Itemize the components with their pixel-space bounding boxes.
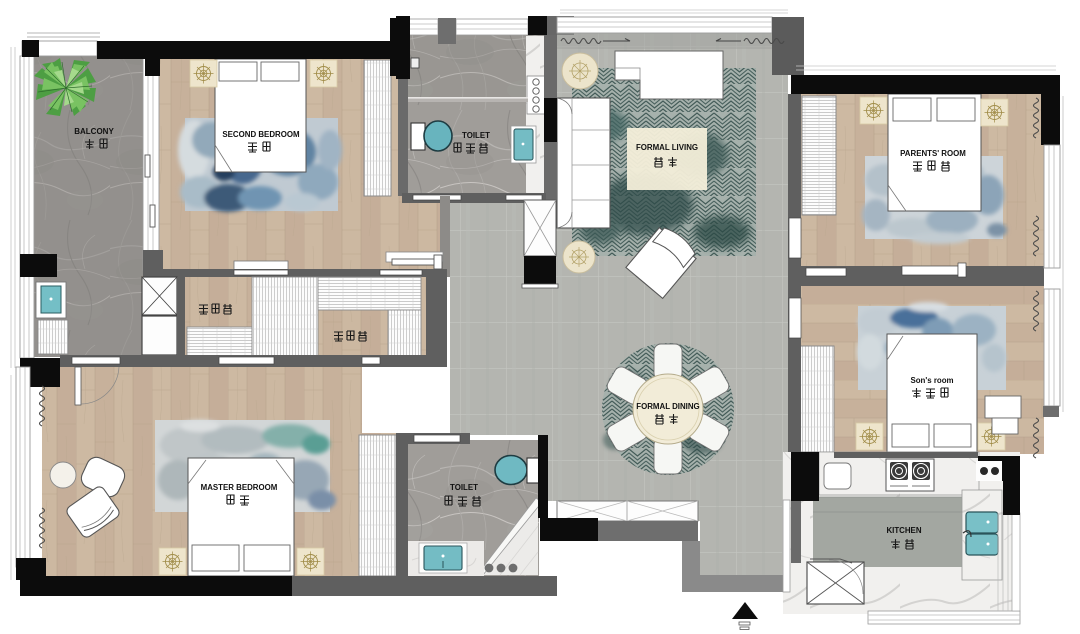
svg-text:TOILET: TOILET: [462, 131, 490, 140]
svg-text:TOILET: TOILET: [450, 483, 478, 492]
svg-text:BALCONY: BALCONY: [74, 127, 114, 136]
svg-text:KITCHEN: KITCHEN: [886, 526, 921, 535]
svg-text:FORMAL DINING: FORMAL DINING: [636, 402, 699, 411]
svg-text:MASTER BEDROOM: MASTER BEDROOM: [201, 483, 278, 492]
svg-text:Son's room: Son's room: [910, 376, 953, 385]
svg-text:FORMAL LIVING: FORMAL LIVING: [636, 143, 698, 152]
svg-text:SECOND BEDROOM: SECOND BEDROOM: [222, 130, 300, 139]
svg-text:PARENTS' ROOM: PARENTS' ROOM: [900, 149, 966, 158]
